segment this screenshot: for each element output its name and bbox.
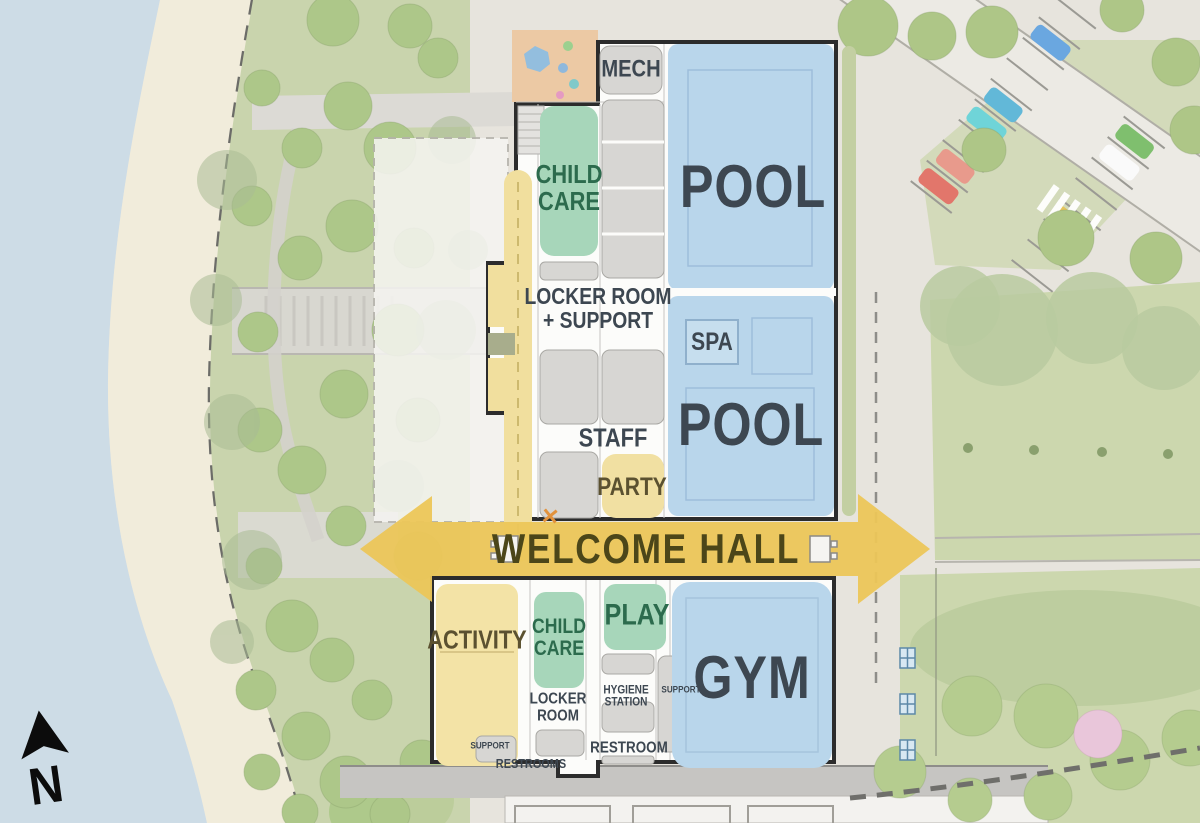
picnic-table-icons <box>900 648 915 760</box>
label-hygiene-station: HYGIENE STATION <box>603 684 648 709</box>
label-pool-upper: POOL <box>680 156 826 218</box>
label-welcome-hall: WELCOME HALL <box>492 527 800 571</box>
label-party: PARTY <box>597 474 667 500</box>
label-mech: MECH <box>601 58 660 83</box>
label-restroom: RESTROOM <box>590 741 668 758</box>
site-plan-canvas: MECH CHILD CARE POOL LOCKER ROOM + SUPPO… <box>0 0 1200 823</box>
playground-area <box>512 30 598 102</box>
x-marker: ✕ <box>539 503 560 531</box>
label-restrooms: RESTROOMS <box>496 757 566 771</box>
label-staff: STAFF <box>579 424 648 451</box>
hedge-strip <box>842 46 856 516</box>
label-child-care-south: CHILD CARE <box>532 616 586 660</box>
label-pool-lower: POOL <box>678 394 824 456</box>
label-child-care-north: CHILD CARE <box>536 161 603 215</box>
label-spa: SPA <box>691 329 733 355</box>
label-locker-support: LOCKER ROOM + SUPPORT <box>524 285 671 333</box>
label-support-gym: SUPPORT <box>661 685 700 694</box>
label-play: PLAY <box>605 599 670 630</box>
pink-tree <box>1074 710 1122 758</box>
label-activity: ACTIVITY <box>427 626 527 653</box>
site-map-graphics <box>0 0 1200 823</box>
label-locker-room-south: LOCKER ROOM <box>530 691 587 724</box>
label-support-activity: SUPPORT <box>470 741 509 750</box>
label-gym: GYM <box>693 647 810 709</box>
